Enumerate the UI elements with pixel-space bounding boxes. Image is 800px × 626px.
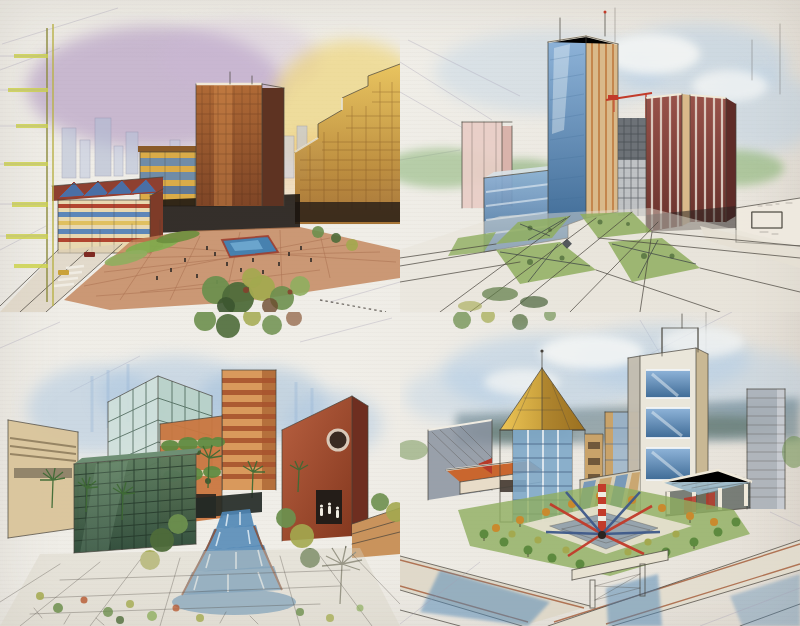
car [58, 270, 69, 275]
blue-tan-tower [548, 11, 618, 233]
signature-scribble [320, 300, 386, 312]
dark-green-glass-cube [74, 448, 202, 553]
tan-building-left [8, 420, 78, 538]
central-brown-tower [196, 72, 284, 206]
sketch-courtyard-fountain [0, 312, 400, 626]
sketch-office-park [400, 0, 800, 312]
sketch-sunset-plaza-svg [0, 0, 400, 312]
sketch-sunset-plaza [0, 0, 400, 312]
book-page [0, 0, 800, 626]
sketch-civic-center [400, 312, 800, 626]
terracotta-banded-tower [222, 370, 276, 490]
sketch-office-park-svg [400, 0, 800, 312]
sketch-civic-center-svg [400, 312, 800, 626]
car [84, 252, 95, 257]
stepped-dark-base [295, 202, 400, 222]
glass-panels [646, 370, 690, 480]
sketch-courtyard-fountain-svg [0, 312, 400, 626]
foreground-paving [0, 548, 400, 626]
